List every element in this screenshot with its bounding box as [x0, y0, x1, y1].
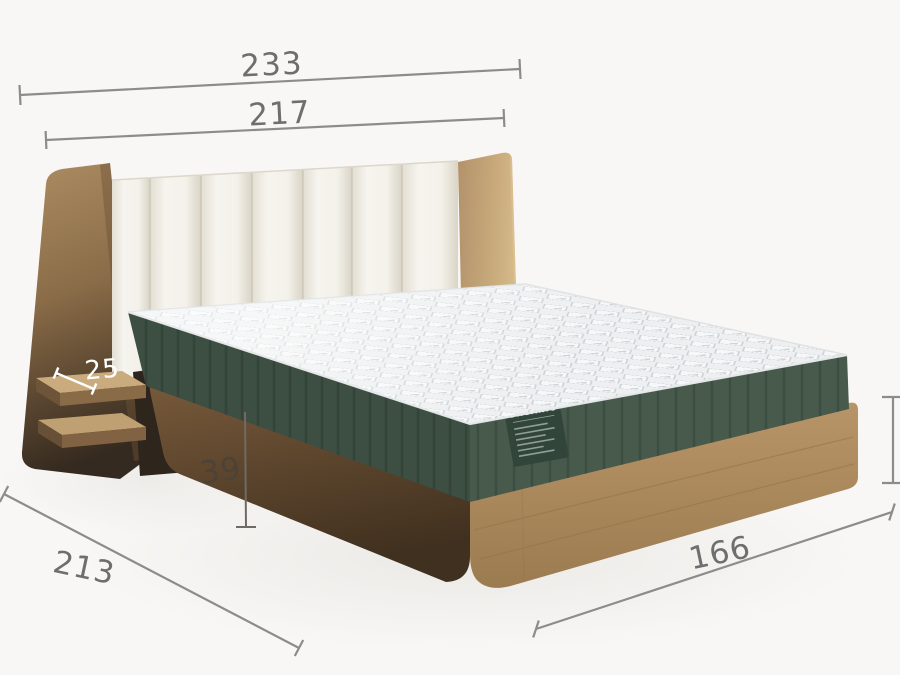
dimension-right-height-cropped: [882, 397, 900, 483]
dim-217-tick-right: [504, 109, 505, 127]
right-wing-board: [458, 153, 516, 295]
dim-233-value: 233: [239, 45, 303, 84]
dim-217-tick-left: [46, 131, 47, 149]
dim-213-tick-right: [295, 640, 303, 656]
dimension-headboard-width: 217: [46, 94, 505, 149]
dim-39-value: 39: [198, 450, 244, 491]
bed-illustration: ORGANIC 233 217: [0, 0, 900, 675]
headboard-right-wing-panel: [458, 153, 516, 295]
dim-217-value: 217: [247, 94, 311, 133]
dim-233-tick-left: [20, 85, 21, 105]
dim-39-line: [245, 412, 246, 527]
dim-25-value: 25: [84, 354, 122, 387]
bed-dimension-diagram: ORGANIC 233 217: [0, 0, 900, 675]
dim-233-tick-right: [520, 59, 521, 79]
